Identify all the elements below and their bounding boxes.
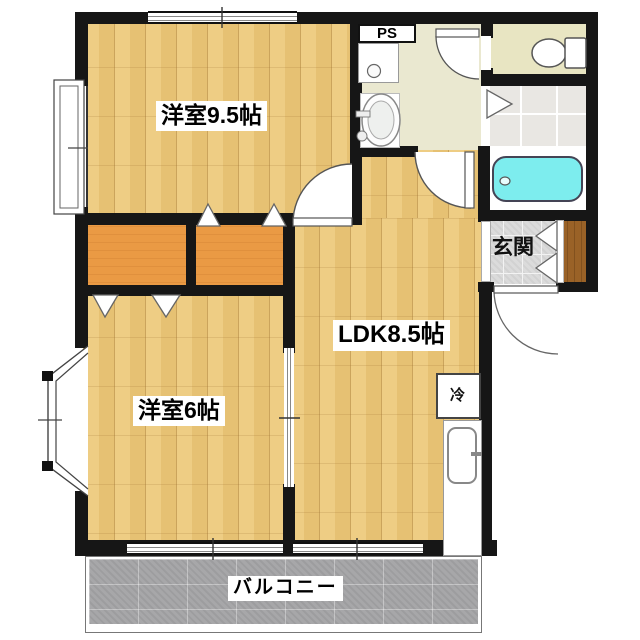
bathtub-drain-icon [500,177,510,185]
toilet-icon [532,38,586,68]
floor-plan: 洋室9.5帖 洋室6帖 LDK8.5帖 玄関 バルコニー PS 冷 [0,0,640,640]
door-front [494,286,558,354]
closet1-triangle-a [197,204,220,226]
label-ldk: LDK8.5帖 [333,320,450,351]
bay-window [38,346,88,496]
plan-symbols [0,0,640,640]
label-bedroom1: 洋室9.5帖 [156,101,267,131]
entrance-closet-triangle-a [536,221,557,251]
label-bedroom2: 洋室6帖 [133,396,225,426]
label-entrance: 玄関 [492,235,534,260]
closet2-triangle-b [152,295,180,317]
door-toilet [436,29,479,79]
window-left-frame [54,80,88,214]
label-pipe-space: PS [358,24,416,43]
closet1-triangle-b [262,204,286,226]
door-washroom [415,152,474,208]
bathroom-door-triangle [487,90,512,118]
label-balcony: バルコニー [228,576,343,601]
washer-drain-icon [368,65,381,78]
label-refrigerator: 冷 [450,387,465,405]
door-bedroom1 [293,164,352,226]
entrance-closet-triangle-b [536,253,557,283]
washbasin-icon [356,94,400,146]
closet2-triangle-a [93,295,118,317]
